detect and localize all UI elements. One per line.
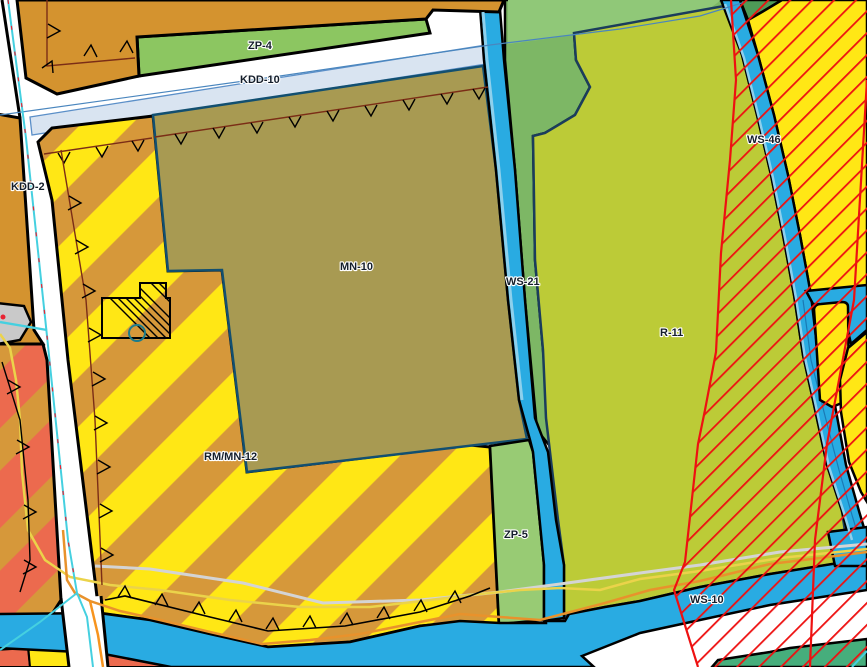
svg-text:RM/MN-12: RM/MN-12 <box>204 451 257 463</box>
svg-text:ZP-4: ZP-4 <box>248 40 273 52</box>
svg-text:R-11: R-11 <box>660 327 683 339</box>
svg-text:KDD-2: KDD-2 <box>11 181 45 193</box>
svg-text:WS-10: WS-10 <box>690 594 724 606</box>
svg-text:WS-21: WS-21 <box>506 276 540 288</box>
svg-text:WS-46: WS-46 <box>747 134 781 146</box>
svg-text:ZP-5: ZP-5 <box>504 529 528 541</box>
svg-text:MN-10: MN-10 <box>340 261 373 273</box>
svg-text:KDD-10: KDD-10 <box>240 74 280 86</box>
